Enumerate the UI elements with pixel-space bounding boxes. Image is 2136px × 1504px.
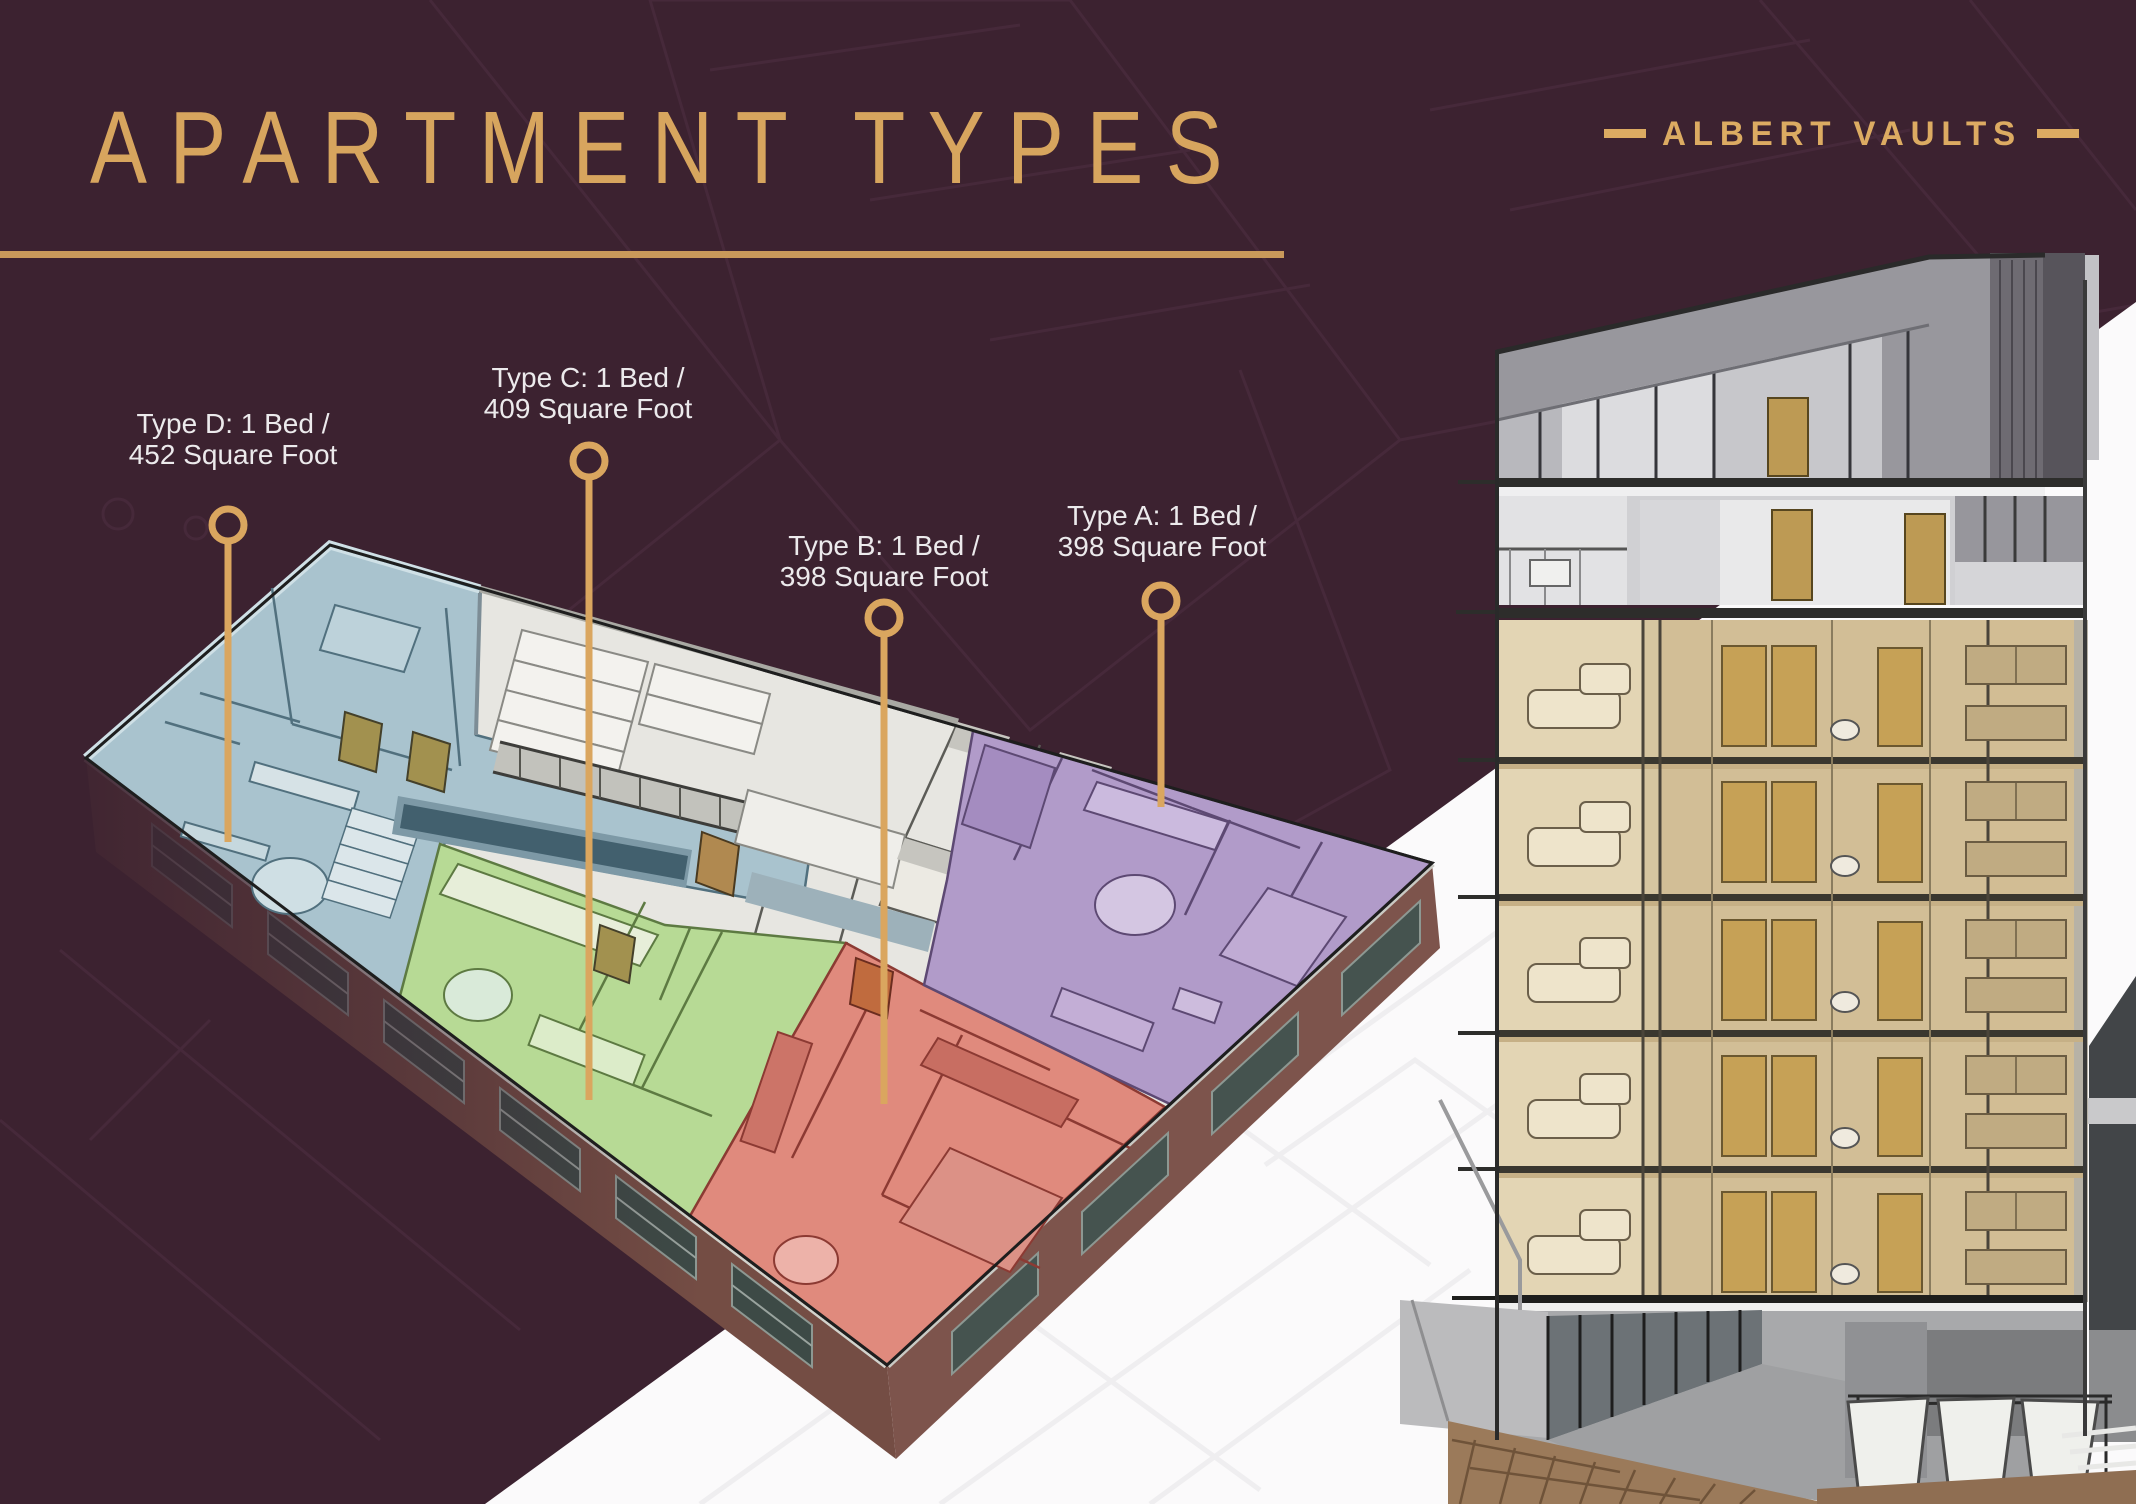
- svg-text:Type B: 1 Bed /: Type B: 1 Bed /: [788, 530, 980, 561]
- svg-text:Type D: 1 Bed /: Type D: 1 Bed /: [137, 408, 330, 439]
- svg-text:ALBERT VAULTS: ALBERT VAULTS: [1662, 115, 2022, 153]
- svg-text:409 Square Foot: 409 Square Foot: [484, 393, 693, 424]
- svg-text:452 Square Foot: 452 Square Foot: [129, 439, 338, 470]
- svg-text:Type A: 1 Bed /: Type A: 1 Bed /: [1067, 500, 1257, 531]
- svg-text:APARTMENT TYPES: APARTMENT TYPES: [90, 90, 1245, 205]
- svg-text:Type C: 1 Bed /: Type C: 1 Bed /: [492, 362, 685, 393]
- svg-text:398 Square Foot: 398 Square Foot: [1058, 531, 1267, 562]
- svg-text:398 Square Foot: 398 Square Foot: [780, 561, 989, 592]
